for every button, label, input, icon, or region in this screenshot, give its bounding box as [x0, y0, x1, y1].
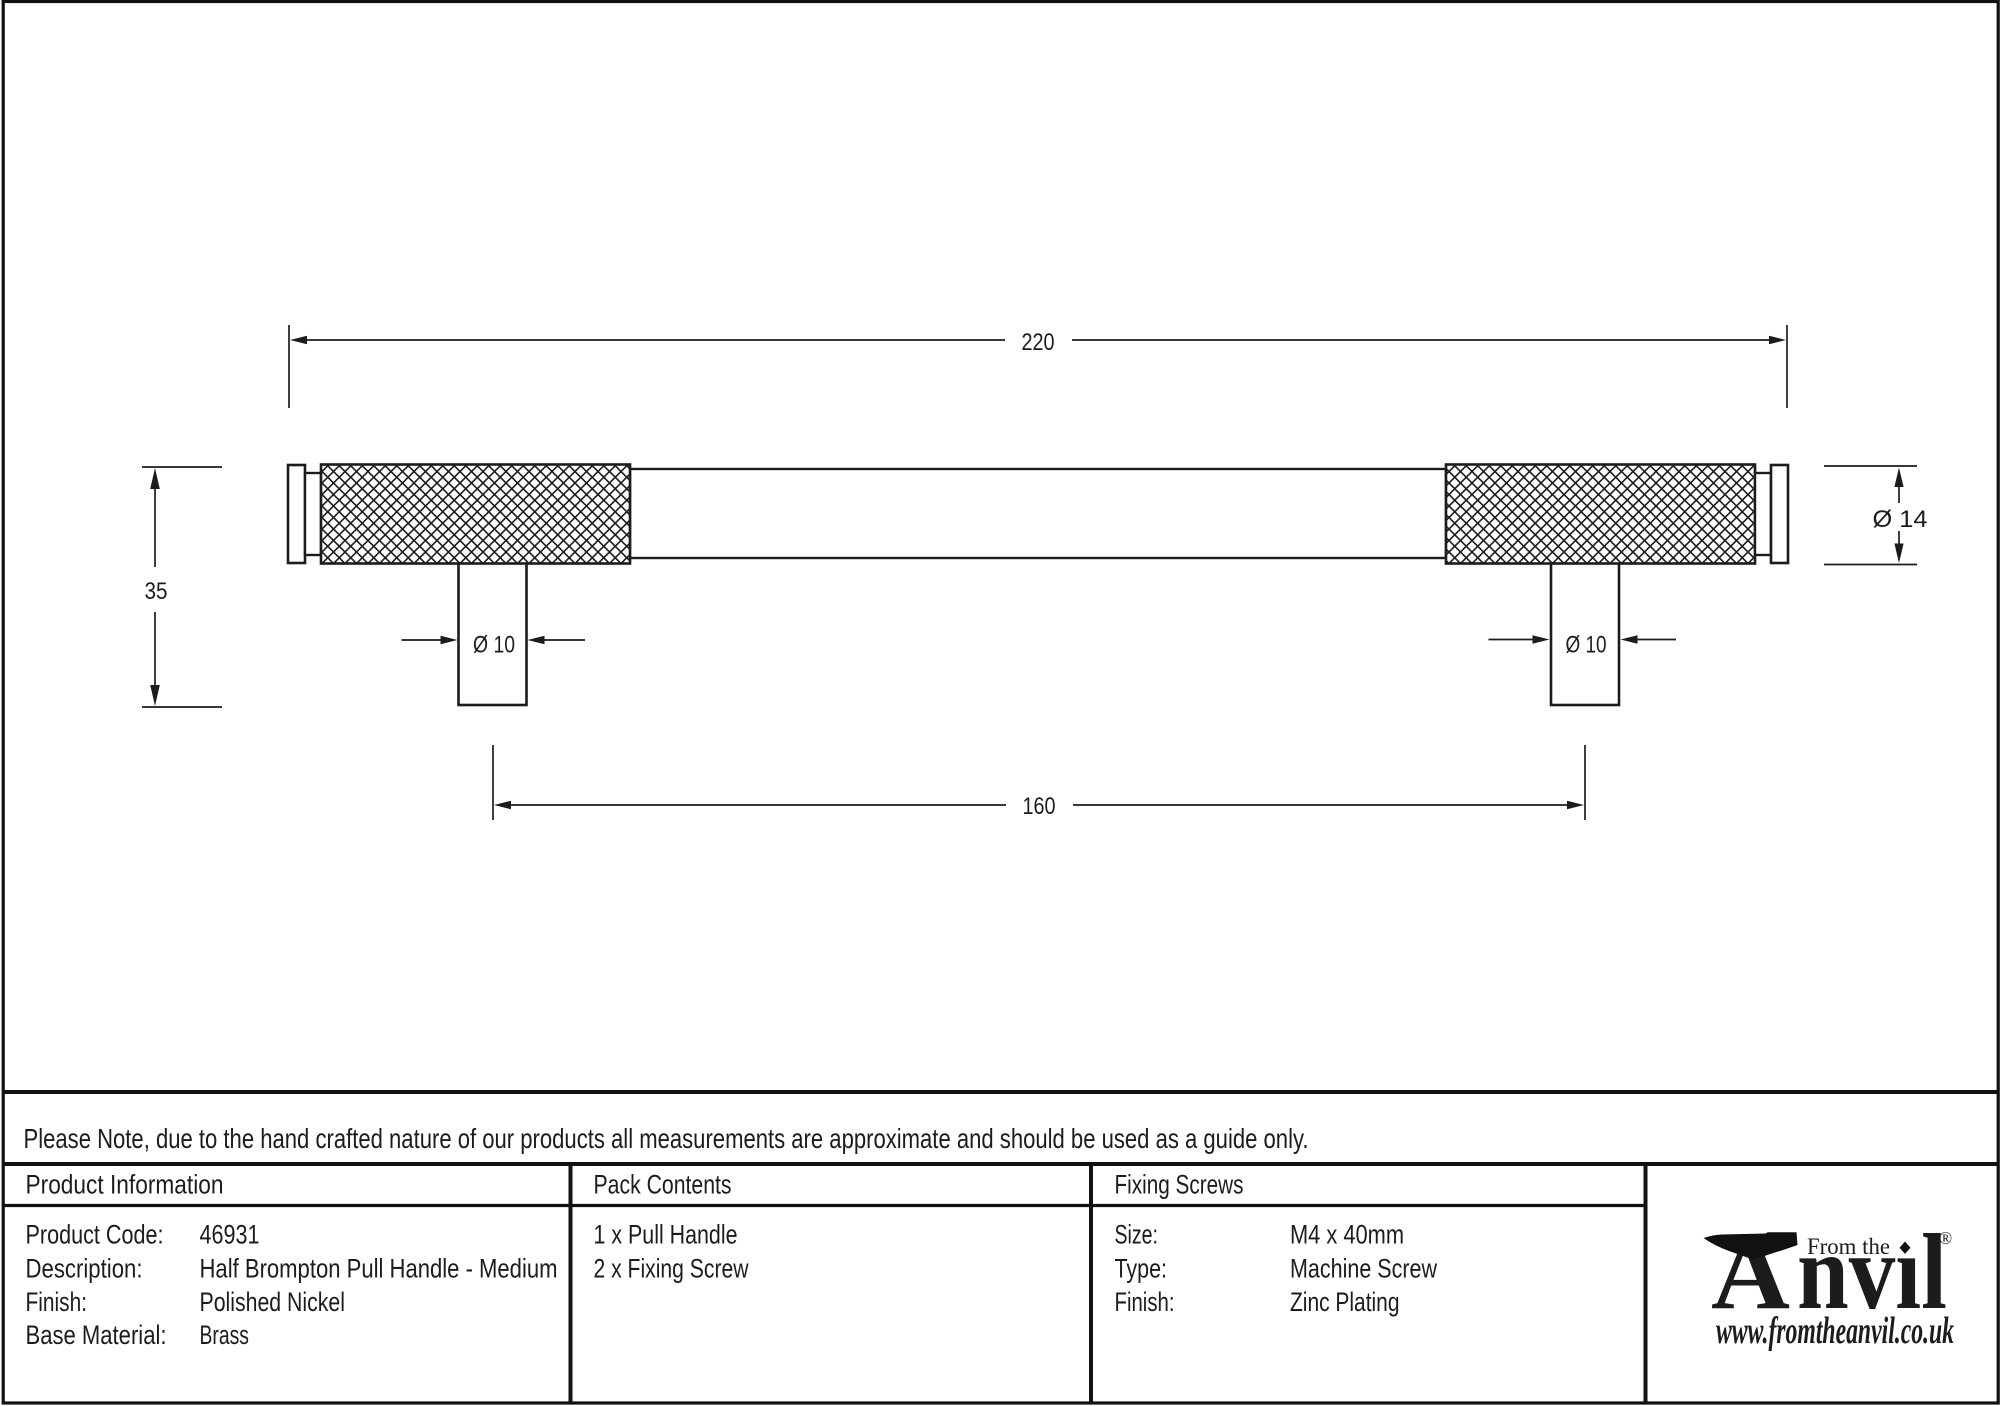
svg-text:Half Brompton Pull Handle - Me: Half Brompton Pull Handle - Medium — [200, 1253, 558, 1283]
svg-text:Machine Screw: Machine Screw — [1290, 1253, 1438, 1283]
svg-text:Ø 10: Ø 10 — [473, 632, 515, 659]
svg-text:Description:: Description: — [26, 1253, 143, 1283]
svg-text:1 x Pull Handle: 1 x Pull Handle — [594, 1220, 738, 1250]
svg-text:35: 35 — [145, 578, 168, 605]
svg-text:®: ® — [1939, 1228, 1952, 1248]
svg-text:Ø 14: Ø 14 — [1873, 506, 1928, 533]
svg-text:Size:: Size: — [1115, 1220, 1159, 1250]
svg-text:Brass: Brass — [200, 1320, 250, 1350]
svg-text:46931: 46931 — [200, 1220, 260, 1250]
svg-text:Product Information: Product Information — [26, 1170, 224, 1200]
svg-text:Fixing Screws: Fixing Screws — [1115, 1170, 1244, 1200]
svg-text:Polished Nickel: Polished Nickel — [200, 1287, 346, 1317]
svg-text:Please Note, due to the hand c: Please Note, due to the hand crafted nat… — [24, 1123, 1309, 1154]
svg-text:Finish:: Finish: — [26, 1287, 88, 1317]
svg-text:Zinc Plating: Zinc Plating — [1290, 1287, 1400, 1317]
svg-text:Ø 10: Ø 10 — [1566, 632, 1607, 659]
svg-text:Pack Contents: Pack Contents — [594, 1170, 732, 1200]
svg-text:M4 x 40mm: M4 x 40mm — [1290, 1220, 1404, 1250]
svg-text:Finish:: Finish: — [1115, 1287, 1175, 1317]
svg-text:Base Material:: Base Material: — [26, 1320, 167, 1350]
svg-text:220: 220 — [1022, 329, 1055, 356]
svg-text:2 x Fixing Screw: 2 x Fixing Screw — [594, 1253, 750, 1283]
svg-text:www.fromtheanvil.co.uk: www.fromtheanvil.co.uk — [1716, 1310, 1954, 1352]
svg-text:Type:: Type: — [1115, 1253, 1168, 1283]
svg-text:From the: From the — [1807, 1234, 1890, 1260]
svg-text:Product Code:: Product Code: — [26, 1220, 164, 1250]
svg-text:160: 160 — [1023, 793, 1056, 820]
